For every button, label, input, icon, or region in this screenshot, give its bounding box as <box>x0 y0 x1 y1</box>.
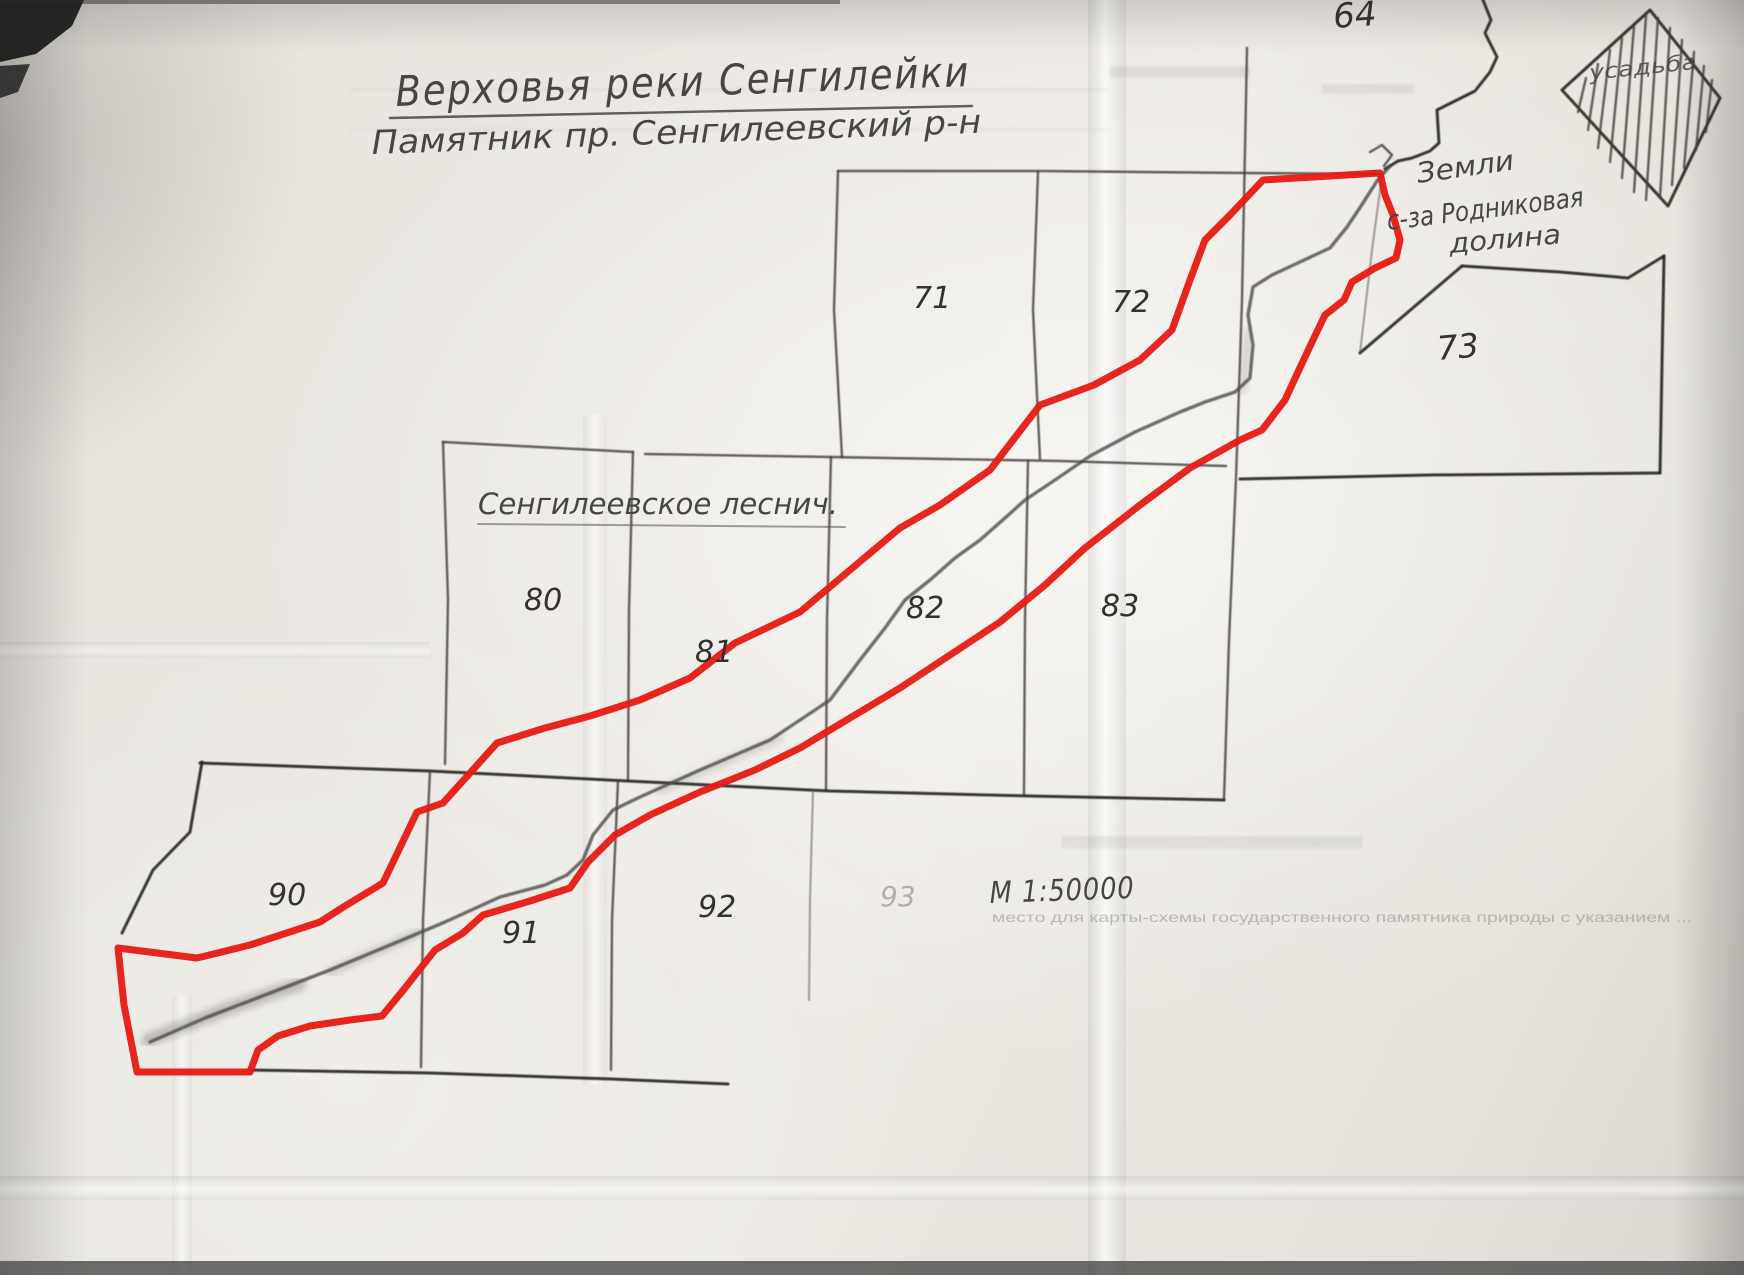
monument-boundary-red-outline <box>118 173 1400 1072</box>
quadrant-80-label: 80 <box>524 583 562 618</box>
quadrant-83-label: 83 <box>1101 589 1139 624</box>
scale-label: М 1:50000 <box>989 871 1135 911</box>
scanned-map-document: Верховья реки Сенгилейки Памятник пр. Се… <box>0 0 1744 1275</box>
quadrant-81-label: 81 <box>695 635 733 670</box>
quadrant-82-label: 82 <box>906 591 944 626</box>
forestry-label: Сенгилеевское леснич. <box>478 487 838 521</box>
quadrant-91-label: 91 <box>502 916 540 951</box>
hatched-diamond-symbol <box>1562 10 1720 206</box>
quadrant-93-label: 93 <box>880 880 916 913</box>
quadrant-73-label: 73 <box>1435 325 1480 368</box>
printed-footer-note: место для карты-схемы государственного п… <box>992 909 1692 925</box>
quadrant-92-label: 92 <box>698 890 736 925</box>
quadrant-64-label: 64 <box>1332 0 1378 37</box>
map-titles: Верховья реки Сенгилейки Памятник пр. Се… <box>371 47 982 162</box>
map-drawing: Верховья реки Сенгилейки Памятник пр. Се… <box>0 0 1744 1275</box>
quadrant-90-label: 90 <box>268 878 306 913</box>
map-annotations: Сенгилеевское леснич. Земли с-за Роднико… <box>478 50 1698 925</box>
quadrant-72-label: 72 <box>1112 285 1150 320</box>
forestry-underline <box>478 524 845 527</box>
quadrant-71-label: 71 <box>913 281 951 316</box>
